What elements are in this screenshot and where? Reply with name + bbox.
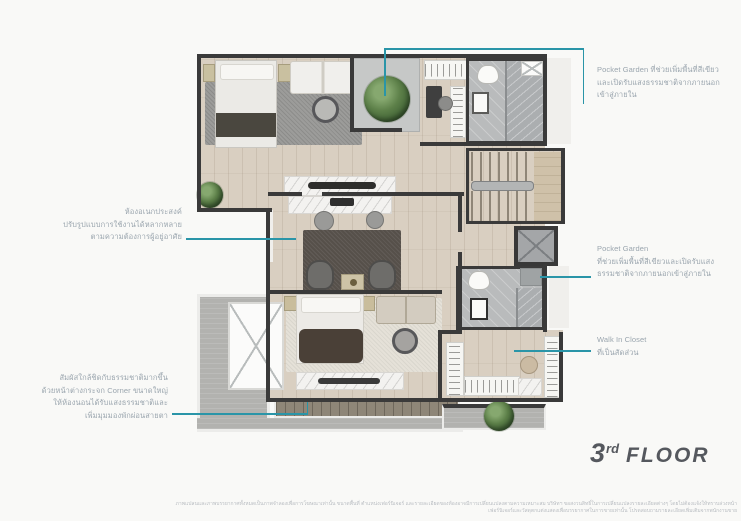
- disclaimer-text: ภาพแปลนและภาพบรรยากาศทั้งหมดเป็นภาพจำลอง…: [137, 501, 737, 515]
- counter-decor: [308, 182, 376, 189]
- desk-chair: [366, 211, 384, 229]
- toilet-icon: [468, 271, 490, 290]
- annotation-text: ที่เป็นสัดส่วน: [597, 347, 737, 360]
- wall-segment: [440, 398, 563, 402]
- wall-segment: [350, 128, 402, 132]
- elevator: [514, 226, 558, 266]
- bed-pillows: [220, 64, 274, 80]
- nightstand: [203, 64, 215, 82]
- stair-flight-upper: [471, 152, 534, 181]
- wall-segment: [458, 192, 462, 232]
- annotation-walk-in-closet: Walk In Closet ที่เป็นสัดส่วน: [597, 334, 737, 359]
- wall-segment: [350, 56, 354, 132]
- wall-segment: [458, 252, 462, 292]
- wall-segment: [420, 142, 547, 146]
- annotation-line: [384, 48, 584, 50]
- annotation-corner-window: สัมผัสใกล้ชิดกับธรรมชาติมากขึ้น ด้วยหน้า…: [25, 372, 168, 422]
- sink-icon: [470, 298, 488, 320]
- wall-segment: [543, 264, 547, 332]
- closet-rack-top: [424, 60, 468, 80]
- wall-segment: [268, 290, 442, 294]
- closet-vanity: [518, 378, 542, 396]
- floor-number: 3: [590, 438, 605, 469]
- window-ledge-top-right: [547, 58, 571, 144]
- bed-blanket: [216, 113, 276, 137]
- annotation-pocket-garden-mid: Pocket Garden ที่ช่วยเพิ่มพื้นที่สีเขียว…: [597, 243, 737, 281]
- wall-segment: [543, 54, 547, 146]
- coffee-table: [312, 96, 339, 123]
- annotation-pocket-garden-top: Pocket Garden ที่ช่วยเพิ่มพื้นที่สีเขียว…: [597, 64, 737, 102]
- annotation-line: [514, 350, 591, 352]
- annotation-line: [583, 48, 585, 104]
- skylight-void: [228, 302, 284, 390]
- bed: [215, 60, 277, 148]
- stair-landing-rail: [471, 181, 534, 191]
- closet-rack-left: [446, 342, 464, 396]
- stair-landing: [534, 152, 562, 221]
- wall-segment: [561, 148, 565, 224]
- stair-flight-lower: [471, 191, 534, 221]
- closet-stool: [520, 356, 538, 374]
- wall-segment: [438, 330, 462, 334]
- wall-segment: [322, 192, 464, 196]
- desk-chair: [314, 211, 334, 231]
- annotation-title: Pocket Garden: [597, 243, 737, 256]
- wall-segment: [197, 54, 547, 58]
- annotation-text: ห้องอเนกประสงค์ ปรับรูปแบบการใช้งานได้หล…: [30, 206, 182, 244]
- annotation-text: ที่ช่วยเพิ่มพื้นที่สีเขียวและเปิดรับแสง …: [597, 256, 737, 281]
- wall-segment: [266, 398, 464, 402]
- sofa: [290, 61, 356, 94]
- annotation-line: [540, 276, 591, 278]
- armchair: [368, 260, 396, 290]
- wall-segment: [438, 330, 442, 400]
- pocket-garden-plant-icon: [364, 76, 410, 122]
- floor-ordinal: rd: [606, 441, 619, 456]
- annotation-line: [384, 48, 386, 96]
- side-table: [392, 328, 418, 354]
- master-bed: [296, 294, 364, 364]
- armchair: [306, 260, 334, 290]
- bed-pillows: [301, 297, 361, 313]
- shower-mid: [516, 288, 542, 327]
- annotation-title: Walk In Closet: [597, 334, 737, 347]
- balcony-plant-icon: [484, 401, 514, 431]
- wall-segment: [197, 208, 272, 212]
- wall-segment: [268, 192, 302, 196]
- closet-rack-bottom: [464, 376, 520, 396]
- wall-segment: [458, 292, 462, 334]
- annotation-text: สัมผัสใกล้ชิดกับธรรมชาติมากขึ้น ด้วยหน้า…: [25, 372, 168, 422]
- pocket-garden-court: [520, 268, 542, 286]
- annotation-line: [172, 413, 308, 415]
- toilet-icon: [477, 65, 499, 84]
- master-sofa: [376, 296, 436, 324]
- floor-label: 3 rd FLOOR: [590, 438, 710, 469]
- vanity-chair: [438, 96, 453, 111]
- side-console: [341, 274, 364, 290]
- bed-blanket: [299, 329, 363, 363]
- monitor-icon: [330, 198, 354, 206]
- annotation-multipurpose-room: ห้องอเนกประสงค์ ปรับรูปแบบการใช้งานได้หล…: [30, 206, 182, 244]
- lamp-icon: [350, 279, 357, 286]
- sink-icon: [472, 92, 489, 114]
- skylight-vent: [521, 61, 543, 76]
- annotation-line: [186, 238, 296, 240]
- console-decor: [318, 378, 380, 384]
- floor-word: FLOOR: [626, 444, 710, 468]
- annotation-text: Pocket Garden ที่ช่วยเพิ่มพื้นที่สีเขียว…: [597, 64, 737, 102]
- wall-segment: [559, 332, 563, 402]
- wall-segment: [197, 54, 201, 212]
- annotation-line: [307, 402, 309, 415]
- closet-rack-side: [450, 86, 466, 138]
- terrace-bottom-band: [197, 418, 463, 432]
